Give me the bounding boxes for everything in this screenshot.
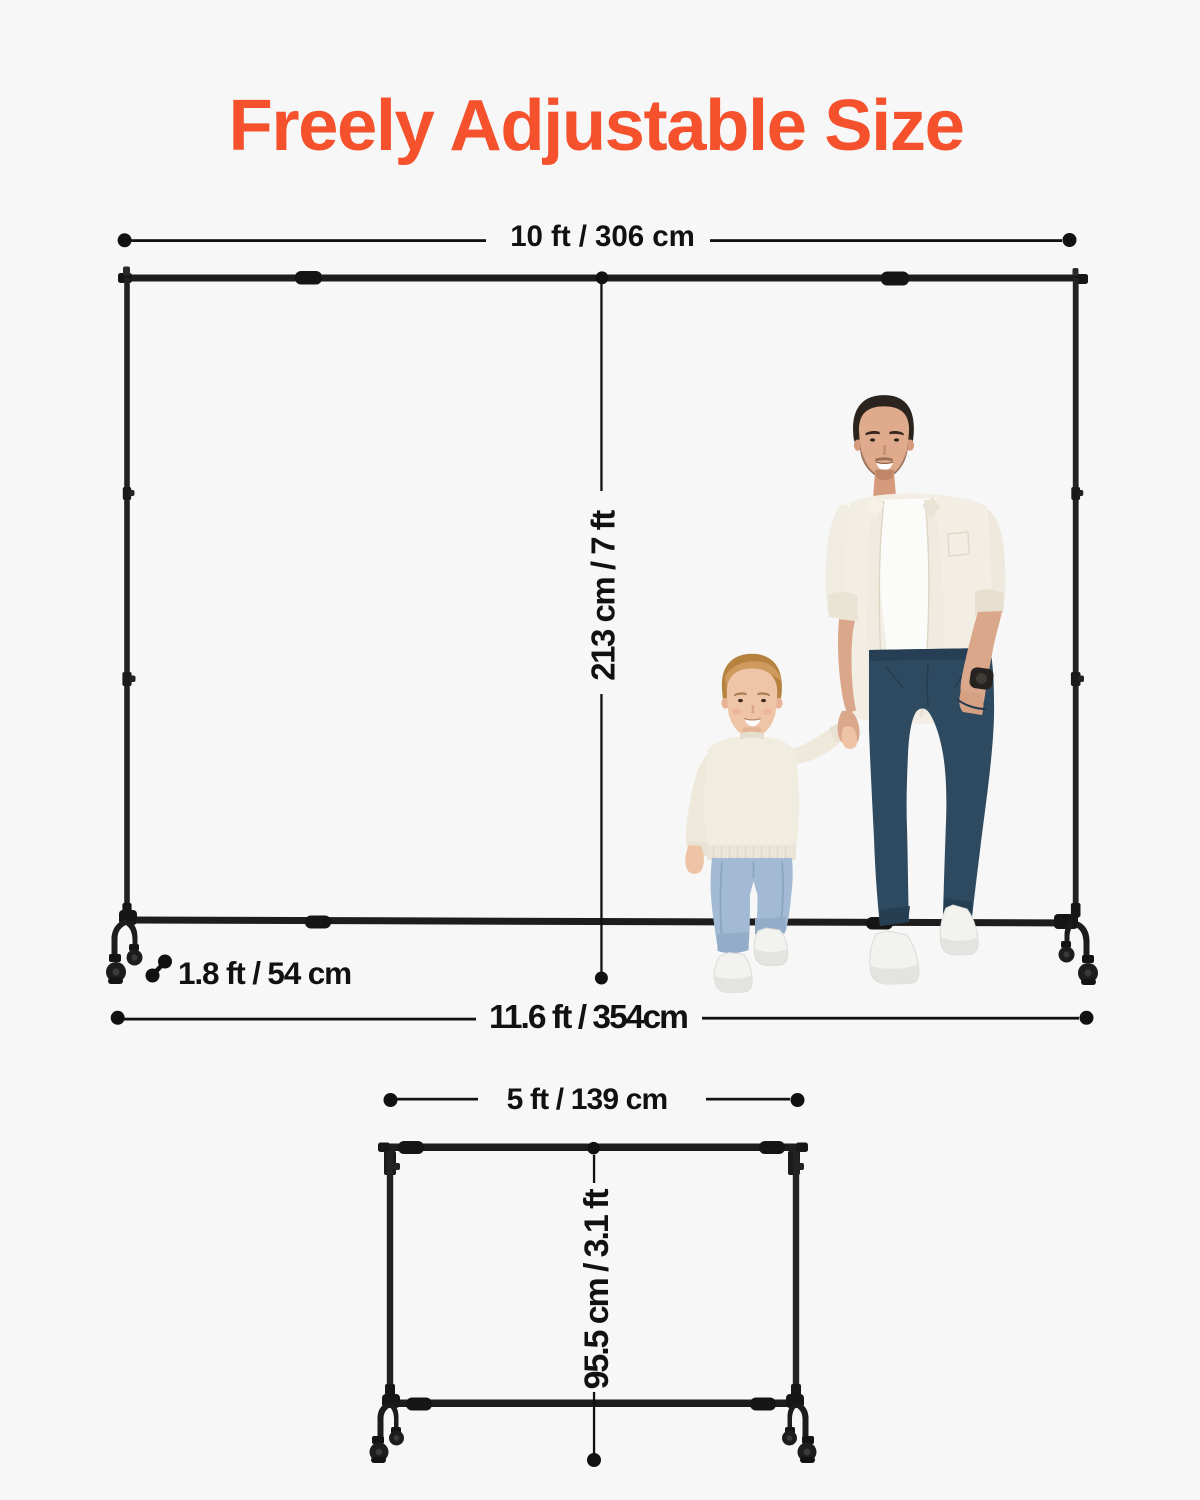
svg-text:11.6 ft / 354cm: 11.6 ft / 354cm (489, 999, 687, 1036)
svg-text:Freely Adjustable Size: Freely Adjustable Size (229, 85, 964, 166)
svg-text:1.8 ft / 54 cm: 1.8 ft / 54 cm (178, 955, 351, 991)
svg-text:213 cm / 7 ft: 213 cm / 7 ft (585, 510, 622, 681)
svg-text:10 ft / 306 cm: 10 ft / 306 cm (510, 220, 695, 253)
svg-text:95.5 cm / 3.1 ft: 95.5 cm / 3.1 ft (578, 1189, 616, 1390)
svg-text:5 ft / 139 cm: 5 ft / 139 cm (507, 1083, 668, 1116)
